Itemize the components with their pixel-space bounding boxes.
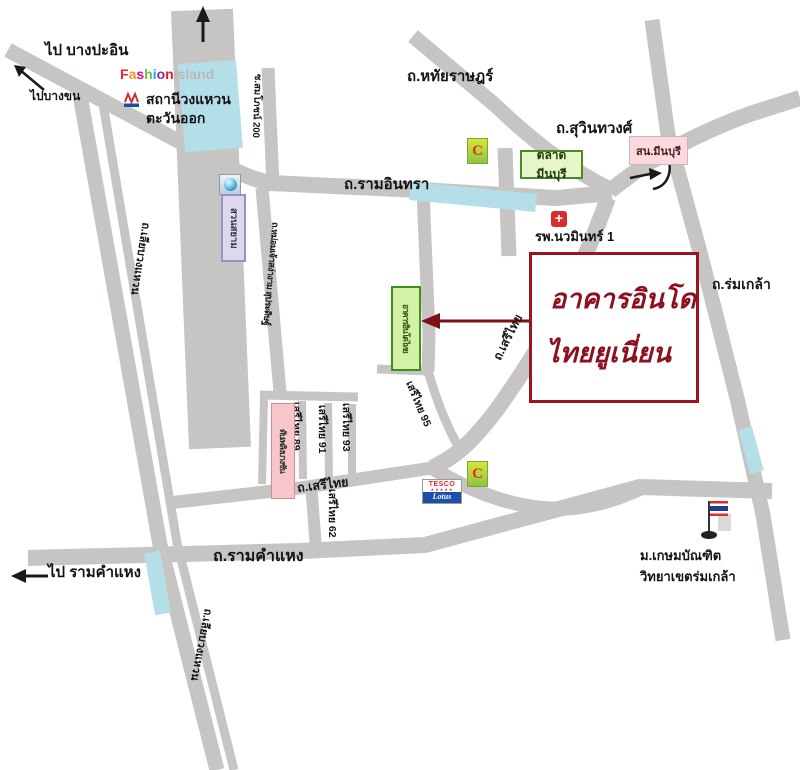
- label-road-ram-khamhaeng: ถ.รามคำแหง: [213, 544, 304, 569]
- road-soi-stub: [260, 395, 358, 397]
- arrow-bang-khen-head: [14, 65, 26, 77]
- suan-siam-box: สวนสยาม: [221, 194, 246, 262]
- road-soi-somphot: [268, 68, 273, 186]
- suan-siam-label: สวนสยาม: [226, 208, 241, 249]
- label-to-bang-khen: ไปบางขน: [30, 87, 80, 106]
- label-to-bang-pa-in: ไป บางปะอิน: [45, 38, 128, 62]
- label-road-ramindra: ถ.รามอินทรา: [344, 172, 429, 196]
- big-c-logo-top: C: [467, 138, 488, 164]
- university-line1: ม.เกษมบัณฑิต: [640, 545, 736, 566]
- ring-road-station-icon: [123, 90, 140, 109]
- destination-name-line1: อาคารอินโด: [550, 277, 696, 320]
- label-ring-road-station: สถานีวงแหวน ตะวันออก: [146, 90, 231, 128]
- arrow-ram-khamhaeng-head: [11, 569, 26, 583]
- station-line1: สถานีวงแหวน: [146, 90, 231, 109]
- fashion-island-logo-fashion: Fashion: [120, 66, 174, 82]
- tesco-lotus-logo: TESCO ★★★★★ Lotus: [422, 479, 462, 504]
- road-building-access: [423, 190, 429, 372]
- label-soi-93: เสรีไทย 93: [338, 403, 355, 452]
- fire-station-label: ดับเพลิงบางชัน: [276, 429, 290, 473]
- station-line2: ตะวันออก: [146, 109, 231, 128]
- u-turn-straight-arrow-head: [649, 168, 662, 180]
- talat-minburi-box: ตลาดมีนบุรี: [520, 150, 583, 179]
- minburi-police-label: สน.มีนบุรี: [636, 142, 681, 160]
- destination-callout-box: อาคารอินโด ไทยยูเนี่ยน: [529, 252, 699, 403]
- suan-siam-globe-icon: [219, 174, 241, 195]
- road-soi-left: [262, 397, 264, 484]
- talat-minburi-label: ตลาดมีนบุรี: [522, 146, 581, 184]
- canal-liap-wongwaen: [152, 552, 163, 614]
- label-nawamin-hospital: รพ.นวมินทร์ 1: [535, 226, 614, 247]
- hospital-cross-icon: +: [551, 211, 567, 227]
- fire-station-box: ดับเพลิงบางชัน: [271, 403, 295, 499]
- minburi-police-box: สน.มีนบุรี: [629, 136, 688, 165]
- indo-thai-building-label: อาคารอินโดไทย: [399, 304, 413, 353]
- label-soi-somphot-200: ซ.สมโภชน์ 200: [248, 74, 265, 138]
- label-road-hathairat: ถ.หทัยราษฎร์: [407, 64, 493, 88]
- label-university: ม.เกษมบัณฑิต วิทยาเขตร่มเกล้า: [640, 545, 736, 587]
- road-soi-95: [428, 371, 457, 444]
- big-c-logo-bottom: C: [467, 461, 488, 487]
- lotus-logo-text: Lotus: [423, 492, 461, 503]
- destination-name-line2: ไทยยูเนี่ยน: [546, 331, 671, 374]
- label-road-romklao: ถ.ร่มเกล้า: [712, 274, 771, 296]
- university-line2: วิทยาเขตร่มเกล้า: [640, 566, 736, 587]
- indo-thai-building-box: อาคารอินโดไทย: [391, 286, 421, 371]
- map-canvas: ไป บางปะอิน ไปบางขน ไป รามคำแหง Fashioni…: [0, 0, 800, 770]
- label-to-ram-khamhaeng: ไป รามคำแหง: [48, 560, 141, 584]
- university-flag-icon: [700, 498, 734, 547]
- label-road-suwinthawong: ถ.สุวินทวงศ์: [556, 116, 632, 140]
- fashion-island-logo-island: island: [174, 66, 214, 82]
- label-soi-62: เสรีไทย 62: [324, 489, 341, 538]
- label-soi-91: เสรีไทย 91: [314, 405, 331, 454]
- fashion-island-logo: Fashionisland: [120, 66, 214, 82]
